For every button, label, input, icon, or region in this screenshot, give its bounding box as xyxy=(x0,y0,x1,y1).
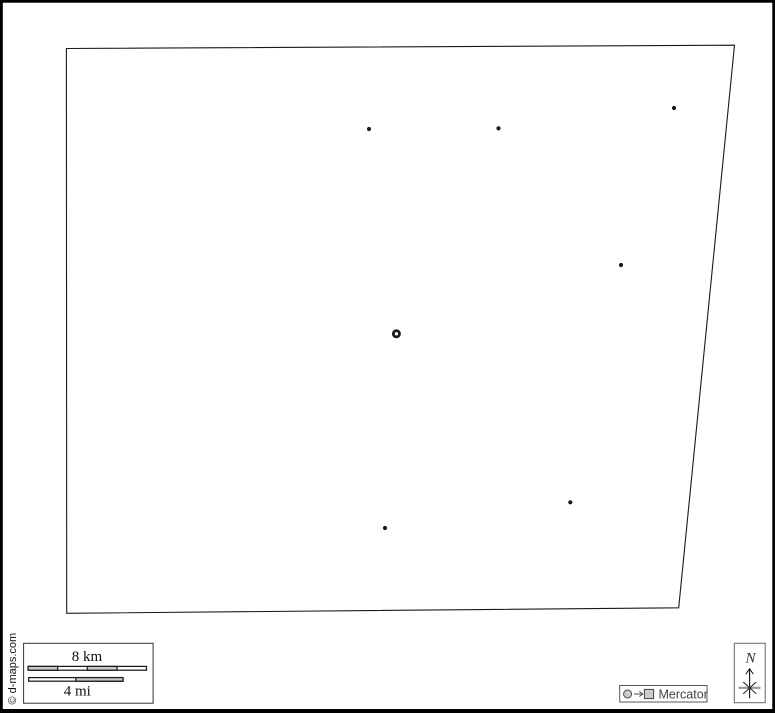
svg-text:N: N xyxy=(744,651,756,667)
svg-text:8 km: 8 km xyxy=(72,649,103,665)
svg-text:© d-maps.com: © d-maps.com xyxy=(7,633,19,705)
svg-text:Mercator: Mercator xyxy=(659,688,708,702)
svg-text:4 mi: 4 mi xyxy=(64,684,91,700)
